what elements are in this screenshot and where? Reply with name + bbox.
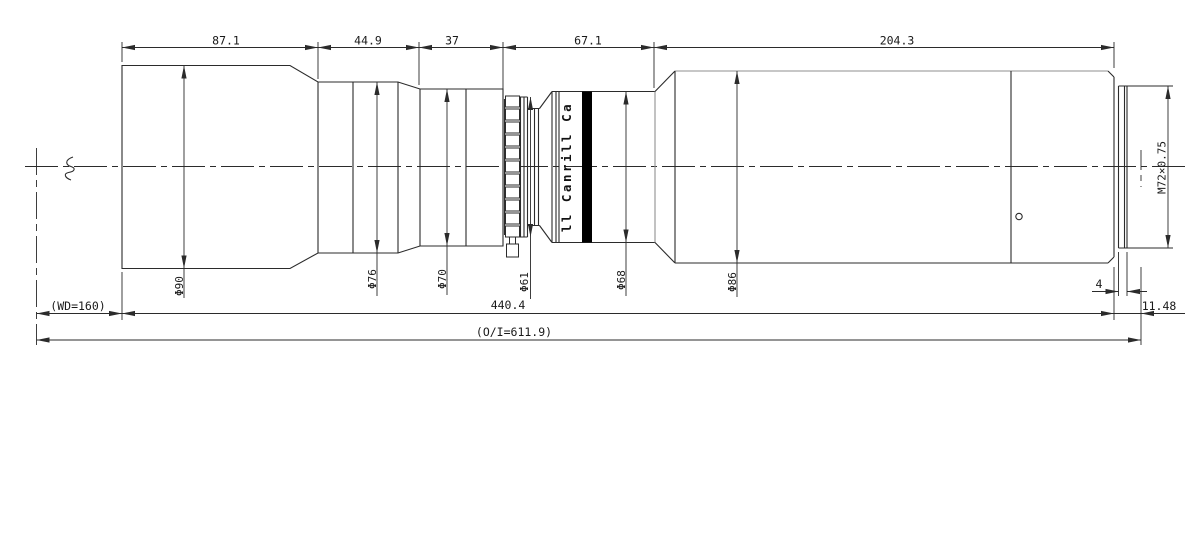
ring-neck: [528, 109, 540, 226]
front-barrel-outline: [122, 66, 503, 269]
knurl-collar-lines: [520, 97, 528, 237]
dia-label-70: Φ70: [436, 269, 449, 289]
datum-lines: [25, 148, 1190, 345]
screw-hole: [1016, 213, 1022, 219]
brand-ring: ll Canrill Ca: [552, 71, 675, 263]
dim-label-67-1: 67.1: [574, 34, 602, 48]
lens-technical-drawing: ll Canrill Ca 87.1 44.9 37 67.1 204.3: [0, 0, 1200, 540]
set-screw: [507, 237, 519, 257]
diameter-dimensions: Φ90 Φ76 Φ70 Φ61 Φ68 Φ86: [173, 66, 739, 300]
dim-label-wd: (WD=160): [50, 299, 105, 313]
dim-label-440-4: 440.4: [491, 298, 526, 312]
top-extension-lines: [122, 42, 1114, 95]
knurled-ring: [505, 92, 553, 258]
dim-label-204-3: 204.3: [880, 34, 915, 48]
knurl-blocks: [506, 96, 520, 237]
dim-label-11-48: 11.48: [1142, 299, 1177, 313]
dim-label-37: 37: [445, 34, 459, 48]
dim-label-4: 4: [1096, 277, 1103, 291]
brand-band: [582, 92, 592, 243]
main-barrel: [675, 71, 1114, 263]
top-dimensions: 87.1 44.9 37 67.1 204.3: [122, 34, 1114, 96]
drawing-canvas: ll Canrill Ca 87.1 44.9 37 67.1 204.3: [0, 0, 1200, 540]
ring-cone: [540, 92, 553, 243]
thread-outline: [1119, 86, 1128, 248]
main-barrel-outline: [675, 71, 1114, 263]
rear-taper: [655, 71, 675, 263]
barrel-brand-text: ll Canrill Ca: [559, 102, 574, 232]
bottom-dimensions: 4 (WD=160) 440.4 11.48 (O/I=611.9): [37, 252, 1186, 340]
dim-label-87-1: 87.1: [212, 34, 240, 48]
dia-label-68: Φ68: [615, 270, 628, 290]
lens-body: ll Canrill Ca: [122, 66, 1173, 269]
front-barrel-internal-lines: [318, 82, 466, 253]
break-symbol: [65, 157, 74, 180]
dia-label-76: Φ76: [366, 269, 379, 289]
thread-dimension: M72×0.75: [1156, 86, 1169, 248]
dia-label-90: Φ90: [173, 276, 186, 296]
dim-label-44-9: 44.9: [354, 34, 382, 48]
thread-dim-label: M72×0.75: [1156, 141, 1169, 194]
dim-label-oi: (O/I=611.9): [476, 325, 552, 339]
dia-label-86: Φ86: [726, 272, 739, 292]
dia-label-61: Φ61: [518, 272, 531, 292]
